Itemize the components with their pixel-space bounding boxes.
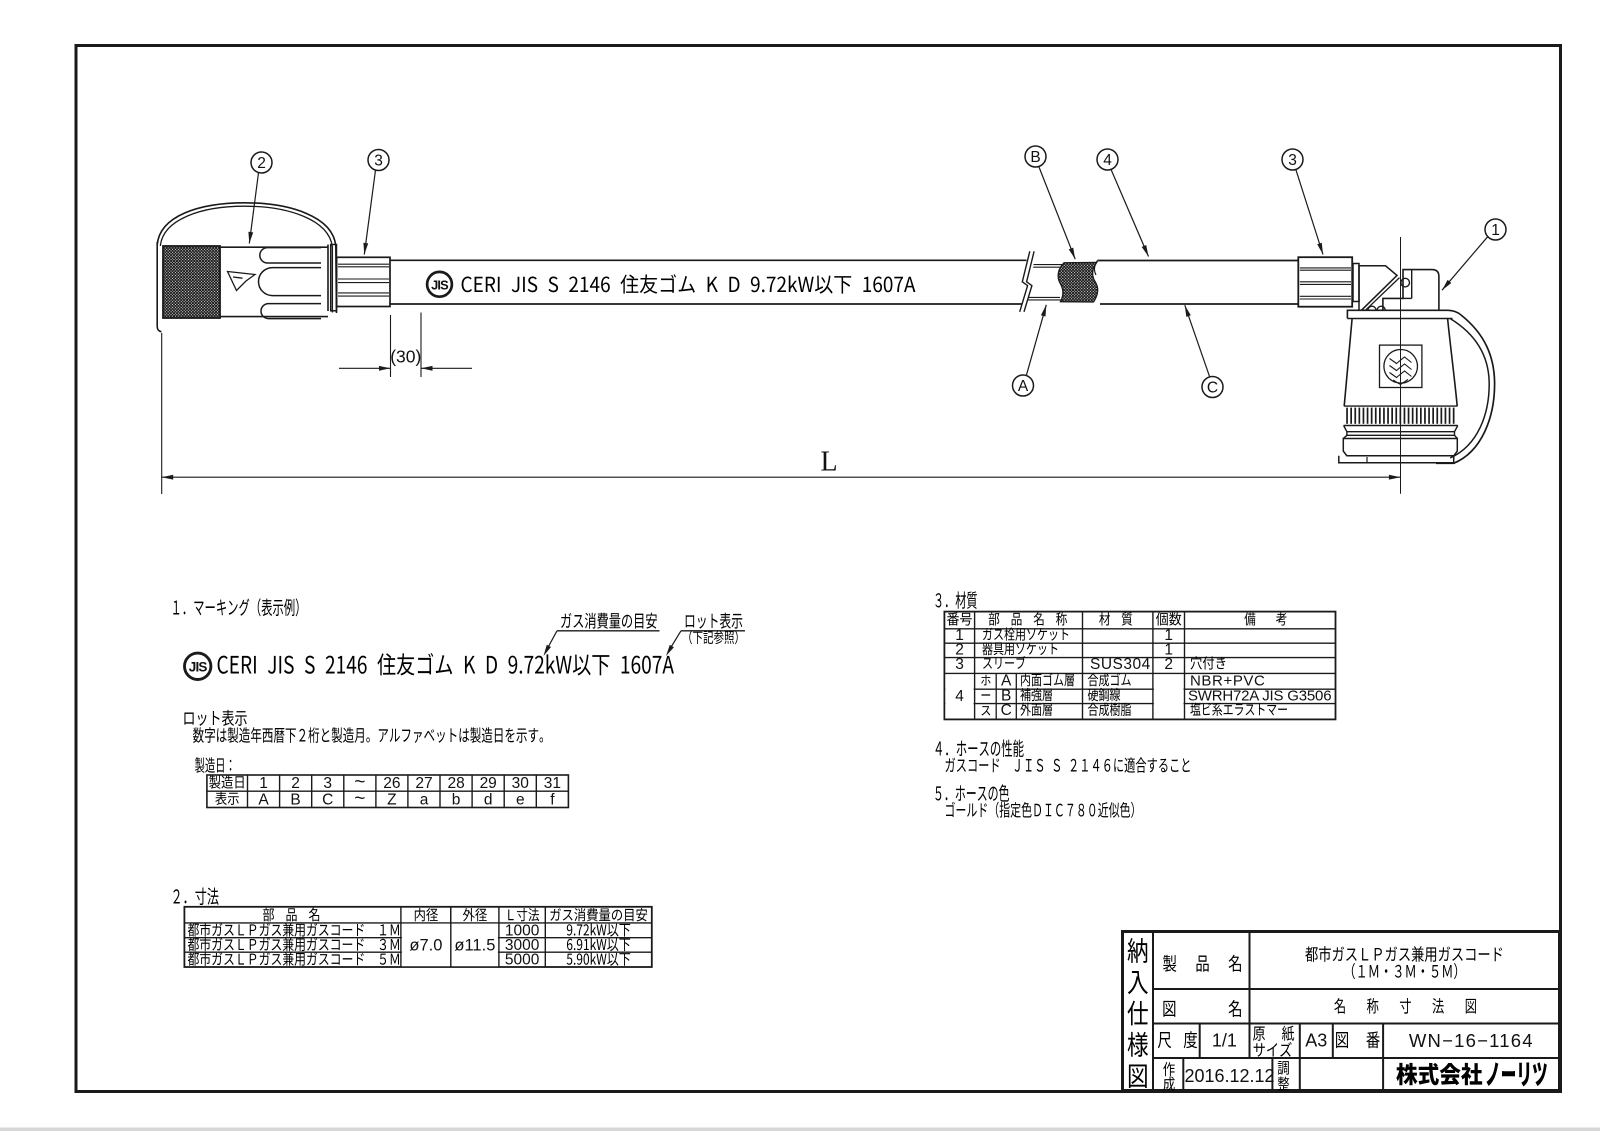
svg-text:C: C <box>1001 702 1012 719</box>
svg-text:ø7.0: ø7.0 <box>409 937 442 955</box>
svg-text:C: C <box>322 791 333 808</box>
svg-text:JIS: JIS <box>431 277 449 292</box>
svg-text:~: ~ <box>354 788 365 809</box>
svg-text:L: L <box>820 447 837 478</box>
svg-text:27: 27 <box>415 775 432 792</box>
svg-text:1: 1 <box>259 775 268 792</box>
svg-text:3: 3 <box>323 775 332 792</box>
svg-text:A: A <box>258 791 269 808</box>
svg-text:31: 31 <box>544 775 561 792</box>
svg-text:2: 2 <box>257 155 266 172</box>
svg-text:3: 3 <box>1288 152 1297 169</box>
svg-text:3: 3 <box>374 152 383 169</box>
svg-text:29: 29 <box>480 775 497 792</box>
svg-text:1: 1 <box>1491 222 1500 239</box>
svg-text:4: 4 <box>955 688 964 705</box>
svg-text:2016.12.12: 2016.12.12 <box>1184 1066 1274 1086</box>
svg-text:2: 2 <box>291 775 300 792</box>
svg-text:A3: A3 <box>1305 1031 1327 1051</box>
svg-text:ø11.5: ø11.5 <box>454 937 495 955</box>
svg-text:30: 30 <box>512 775 530 792</box>
svg-text:b: b <box>452 791 461 808</box>
svg-text:Z: Z <box>387 791 396 808</box>
svg-text:(30): (30) <box>390 347 421 367</box>
svg-text:5000: 5000 <box>505 952 540 969</box>
svg-text:B: B <box>1030 149 1040 166</box>
svg-text:WN−16−1164: WN−16−1164 <box>1409 1030 1534 1051</box>
svg-text:SWRH72A JIS G3506: SWRH72A JIS G3506 <box>1188 687 1331 704</box>
svg-text:JIS: JIS <box>189 660 208 675</box>
svg-text:4: 4 <box>1103 152 1112 169</box>
svg-text:d: d <box>484 791 493 808</box>
svg-text:A: A <box>1018 378 1029 395</box>
svg-text:2: 2 <box>1164 656 1173 673</box>
svg-text:e: e <box>516 791 525 808</box>
svg-text:B: B <box>290 791 300 808</box>
svg-text:C: C <box>1207 379 1218 396</box>
svg-text:1/1: 1/1 <box>1212 1031 1237 1051</box>
svg-text:26: 26 <box>383 775 400 792</box>
svg-text:SUS304: SUS304 <box>1090 656 1151 673</box>
svg-text:f: f <box>550 791 555 808</box>
svg-text:a: a <box>420 791 429 808</box>
svg-text:3: 3 <box>955 656 964 673</box>
svg-text:28: 28 <box>447 775 464 792</box>
